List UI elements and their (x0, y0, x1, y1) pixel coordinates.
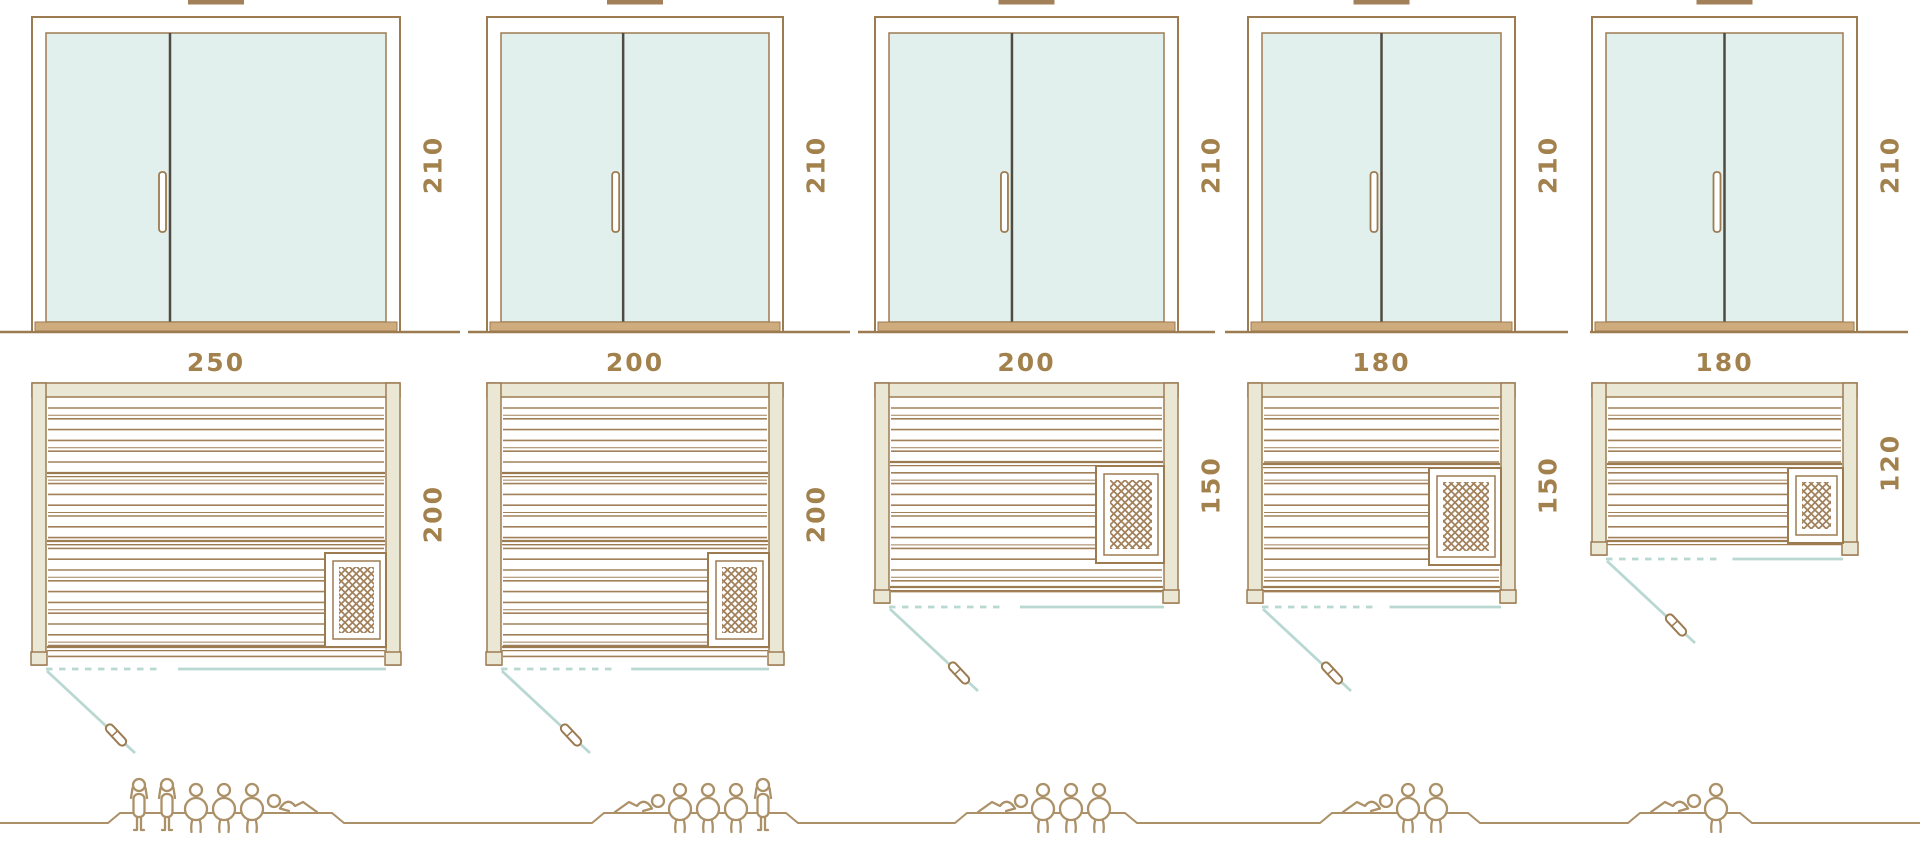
plan-wall-back (1592, 383, 1857, 397)
height-dimension-label: 210 (419, 136, 448, 194)
door-handle-icon (1371, 172, 1378, 232)
plan-post-right (1500, 590, 1516, 603)
person-lying-icon (615, 795, 664, 812)
plan-wall-back (1248, 383, 1515, 397)
roof-vent-bar (607, 0, 663, 5)
height-dimension-label: 210 (1876, 136, 1905, 194)
door-sill (1595, 322, 1854, 331)
depth-dimension-label: 120 (1876, 434, 1905, 492)
person-standing-icon (755, 779, 771, 830)
width-dimension-label: 200 (997, 348, 1055, 377)
sauna-unit-sauna-250x200: 210250200 (31, 0, 448, 753)
plan-post-left (1591, 542, 1607, 555)
person-lying-icon (268, 795, 317, 812)
floor-plan: 180 (1591, 348, 1858, 643)
door-sill (490, 322, 780, 331)
plan-post-right (768, 652, 784, 665)
person-sitting-icon (185, 784, 207, 832)
person-sitting-icon (1060, 784, 1082, 832)
sauna-unit-sauna-180x150: 210180150 (1247, 0, 1563, 691)
heater-area (1429, 468, 1501, 565)
heater-area (708, 553, 769, 647)
width-dimension-label: 180 (1352, 348, 1410, 377)
capacity-group-sauna-200x150 (978, 784, 1110, 832)
person-sitting-icon (213, 784, 235, 832)
heater-lattice-icon (722, 567, 757, 633)
door-handle-icon (159, 172, 166, 232)
plan-wall-left (875, 383, 889, 603)
door-glass (889, 33, 1164, 322)
plan-door-handle-icon (559, 723, 583, 747)
plan-wall-right (1501, 383, 1515, 603)
door-handle-icon (1001, 172, 1008, 232)
plan-post-left (486, 652, 502, 665)
door-elevation (875, 0, 1178, 332)
plan-wall-left (487, 383, 501, 665)
door-handle-icon (1714, 172, 1721, 232)
sauna-unit-sauna-200x200: 210200200 (486, 0, 831, 753)
plan-door-handle-icon (104, 723, 128, 747)
person-sitting-icon (1032, 784, 1054, 832)
plan-post-left (874, 590, 890, 603)
roof-vent-bar (1697, 0, 1753, 5)
depth-dimension-label: 200 (419, 485, 448, 543)
plan-wall-back (875, 383, 1178, 397)
floor-plan: 200 (874, 348, 1179, 691)
person-sitting-icon (697, 784, 719, 832)
width-dimension-label: 250 (187, 348, 245, 377)
plan-wall-back (32, 383, 400, 397)
door-handle-icon (612, 172, 619, 232)
capacity-group-sauna-180x150 (1343, 784, 1447, 832)
person-sitting-icon (1088, 784, 1110, 832)
plan-post-right (385, 652, 401, 665)
plan-wall-right (769, 383, 783, 665)
person-standing-icon (131, 779, 147, 830)
person-standing-icon (159, 779, 175, 830)
sauna-unit-sauna-200x150: 210200150 (874, 0, 1226, 691)
person-lying-icon (978, 795, 1027, 812)
floor-plan: 180 (1247, 348, 1516, 691)
person-lying-icon (1343, 795, 1392, 812)
plan-wall-left (32, 383, 46, 665)
floor-plan: 200 (486, 348, 784, 753)
roof-vent-bar (188, 0, 244, 5)
door-elevation (1592, 0, 1857, 332)
door-sill (35, 322, 397, 331)
plan-wall-right (1164, 383, 1178, 603)
heater-lattice-icon (1802, 482, 1831, 529)
width-dimension-label: 180 (1695, 348, 1753, 377)
person-sitting-icon (725, 784, 747, 832)
height-dimension-label: 210 (1197, 136, 1226, 194)
person-lying-icon (1651, 795, 1700, 812)
door-glass (46, 33, 386, 322)
plan-post-right (1163, 590, 1179, 603)
plan-door-handle-icon (1664, 613, 1688, 637)
roof-vent-bar (1354, 0, 1410, 5)
heater-lattice-icon (1110, 480, 1152, 549)
width-dimension-label: 200 (606, 348, 664, 377)
capacity-group-sauna-180x120 (1651, 784, 1727, 832)
plan-wall-right (1843, 383, 1857, 555)
heater-area (1788, 468, 1843, 543)
roof-vent-bar (999, 0, 1055, 5)
plan-door-handle-icon (1320, 661, 1344, 685)
heater-lattice-icon (339, 567, 374, 633)
plan-door-handle-icon (947, 661, 971, 685)
depth-dimension-label: 150 (1197, 456, 1226, 514)
plan-wall-left (1592, 383, 1606, 555)
door-elevation (1248, 0, 1515, 332)
capacity-group-sauna-200x200 (615, 779, 771, 832)
door-sill (1251, 322, 1512, 331)
height-dimension-label: 210 (802, 136, 831, 194)
person-sitting-icon (1397, 784, 1419, 832)
person-sitting-icon (669, 784, 691, 832)
sauna-unit-sauna-180x120: 210180120 (1591, 0, 1905, 643)
capacity-baseline (0, 813, 1920, 823)
sauna-dimensions-diagram: 2102502002102002002102001502101801502101… (0, 0, 1920, 856)
heater-lattice-icon (1443, 482, 1489, 551)
heater-area (325, 553, 386, 647)
person-sitting-icon (1705, 784, 1727, 832)
diagram-scene: 2102502002102002002102001502101801502101… (0, 0, 1920, 856)
door-glass (501, 33, 769, 322)
plan-wall-left (1248, 383, 1262, 603)
person-sitting-icon (241, 784, 263, 832)
plan-post-left (31, 652, 47, 665)
depth-dimension-label: 150 (1534, 456, 1563, 514)
door-sill (878, 322, 1175, 331)
capacity-group-sauna-250x200 (131, 779, 317, 832)
plan-wall-back (487, 383, 783, 397)
plan-post-left (1247, 590, 1263, 603)
person-sitting-icon (1425, 784, 1447, 832)
floor-plan: 250 (31, 348, 401, 753)
door-elevation (487, 0, 783, 332)
depth-dimension-label: 200 (802, 485, 831, 543)
heater-area (1096, 466, 1164, 563)
plan-post-right (1842, 542, 1858, 555)
height-dimension-label: 210 (1534, 136, 1563, 194)
plan-wall-right (386, 383, 400, 665)
door-elevation (32, 0, 400, 332)
